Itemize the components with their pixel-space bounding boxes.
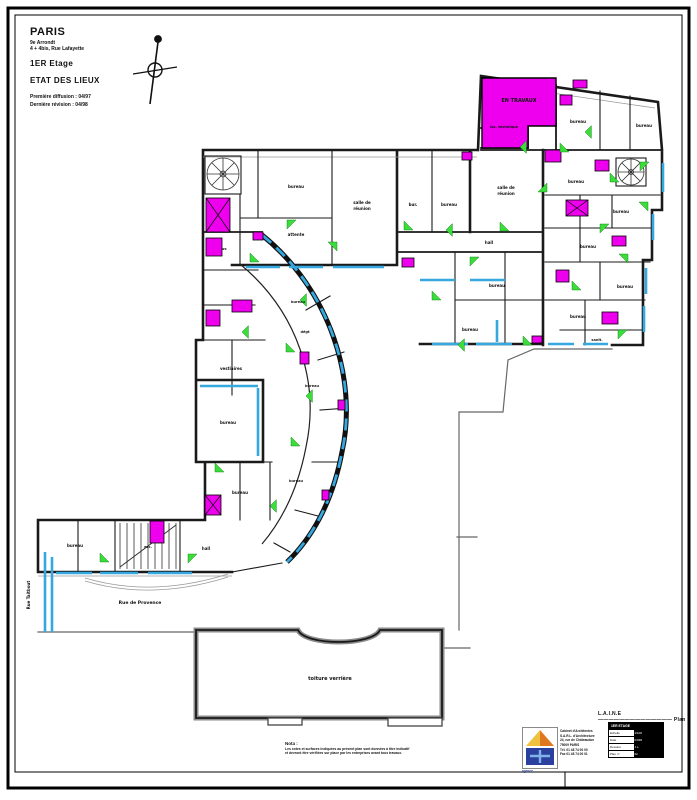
logo-caption: agence bbox=[522, 769, 533, 773]
room-label: réunion bbox=[353, 206, 371, 211]
sheet-rev1: Première diffusion : 04/97 bbox=[30, 94, 100, 100]
door-swing-icon bbox=[500, 222, 509, 231]
stamp-value: 04/98 bbox=[634, 737, 664, 743]
room-label: bureau bbox=[636, 123, 652, 128]
room-label: bureau bbox=[232, 490, 248, 495]
highlight-zone bbox=[206, 238, 222, 256]
title-stamp: 1ER ETAGE Echelle 1/100 Date 04/98 Dessi… bbox=[608, 722, 664, 758]
door-swing-icon bbox=[639, 202, 648, 211]
door-swing-icon bbox=[215, 463, 224, 472]
door-swing-icon bbox=[404, 221, 413, 230]
highlight-zone bbox=[595, 160, 609, 171]
room-label: Rue Taitbout bbox=[26, 581, 31, 610]
highlight-zone bbox=[402, 258, 414, 267]
stamp-label: Echelle bbox=[609, 730, 634, 736]
highlight-zone bbox=[556, 270, 569, 282]
highlight-zone bbox=[462, 152, 472, 160]
sheet-rev2: Dernière révision : 04/98 bbox=[30, 102, 100, 108]
room-label: Rue de Provence bbox=[119, 600, 162, 606]
floor-plan: bureauattentesalle deréunionbur.bureausa… bbox=[26, 76, 663, 726]
room-label: bureau bbox=[67, 543, 83, 548]
highlight-zone bbox=[532, 336, 542, 343]
door-swing-icon bbox=[291, 437, 300, 446]
door-swing-icon bbox=[250, 253, 259, 262]
firm-logo-icon bbox=[522, 727, 558, 769]
door-swing-icon bbox=[470, 257, 479, 266]
room-label: bureau bbox=[489, 283, 505, 288]
room-label: esc. bbox=[144, 545, 152, 549]
room-labels-layer: bureauattentesalle deréunionbur.bureausa… bbox=[26, 98, 652, 682]
spiral-stair-west bbox=[205, 156, 241, 194]
room-label: hall bbox=[202, 546, 211, 551]
door-swing-icon bbox=[270, 500, 283, 513]
room-label: wc bbox=[221, 247, 226, 251]
room-label: bureau bbox=[305, 384, 319, 388]
room-label: sanit. bbox=[591, 338, 602, 342]
room-label: vestiaires bbox=[220, 366, 243, 371]
door-swing-icon bbox=[640, 162, 649, 171]
drawing-sheet: bureauattentesalle deréunionbur.bureausa… bbox=[0, 0, 697, 800]
curved-facade bbox=[240, 235, 346, 562]
room-label: dégt bbox=[300, 330, 309, 334]
door-swing-icon bbox=[242, 326, 255, 339]
door-swing-icon bbox=[610, 173, 619, 182]
room-label: bureau bbox=[570, 119, 586, 124]
room-label: bureau bbox=[462, 327, 478, 332]
highlight-zone bbox=[560, 95, 572, 105]
highlight-zone bbox=[322, 490, 329, 500]
door-swing-icon bbox=[523, 336, 532, 345]
sheet-status: ETAT DES LIEUX bbox=[30, 76, 100, 86]
highlight-zone bbox=[150, 521, 164, 543]
window-layer bbox=[45, 163, 663, 632]
highlight-zone bbox=[232, 300, 252, 312]
door-swing-icon bbox=[286, 343, 295, 352]
sheet-city: PARIS bbox=[30, 26, 100, 40]
note-line: et devront être vérifiées sur place par … bbox=[285, 751, 409, 755]
door-swing-icon bbox=[100, 553, 109, 562]
room-label: hall bbox=[485, 240, 494, 245]
floor-plan-canvas: bureauattentesalle deréunionbur.bureausa… bbox=[0, 0, 697, 800]
stamp-value: 1/100 bbox=[634, 730, 664, 736]
room-label: salle de bbox=[497, 185, 515, 190]
highlight-zone bbox=[206, 310, 220, 326]
door-swing-icon bbox=[446, 224, 459, 237]
room-label: bureau bbox=[289, 479, 303, 483]
north-arrow-icon bbox=[133, 36, 177, 104]
highlight-zone bbox=[612, 236, 626, 246]
door-swing-icon bbox=[432, 291, 441, 300]
door-swing-icon bbox=[287, 220, 296, 229]
highlight-zone bbox=[300, 352, 309, 364]
room-label: bureau bbox=[613, 209, 629, 214]
room-label: bureau bbox=[441, 202, 457, 207]
highlight-zone bbox=[602, 312, 618, 324]
highlight-zone bbox=[545, 150, 561, 162]
sheet-address: 4 + 4bis, Rue Lafayette bbox=[30, 46, 100, 52]
firm-block: Cabinet d'Architectes S.A.R.L. d'Archite… bbox=[560, 729, 606, 757]
room-label: EN TRAVAUX bbox=[501, 98, 536, 104]
door-swing-icon bbox=[572, 281, 581, 290]
highlighted-room bbox=[482, 78, 556, 148]
stamp-value: J.L. bbox=[634, 744, 664, 750]
highlight-zone bbox=[253, 232, 263, 240]
stamp-value: 02 bbox=[634, 751, 664, 757]
highlight-zone bbox=[338, 400, 345, 410]
room-label: bureau bbox=[291, 300, 305, 304]
room-label: bureau bbox=[570, 314, 586, 319]
door-swing-icon bbox=[618, 330, 627, 339]
sheet-floor: 1ER Etage bbox=[30, 59, 100, 69]
stamp-label: Plan n° bbox=[609, 751, 634, 757]
door-swing-icon bbox=[585, 126, 598, 139]
room-label: loc. technique bbox=[490, 125, 519, 129]
title-block: PARIS 9e Arrondt 4 + 4bis, Rue Lafayette… bbox=[30, 26, 100, 108]
stamp-label: Dessiné bbox=[609, 744, 634, 750]
door-swing-icon bbox=[306, 390, 319, 403]
room-label: réunion bbox=[497, 191, 515, 196]
room-label: bureau bbox=[617, 284, 633, 289]
room-label: bureau bbox=[288, 184, 304, 189]
room-label: attente bbox=[288, 232, 305, 237]
room-label: toiture verrière bbox=[308, 675, 352, 682]
room-label: bureau bbox=[220, 420, 236, 425]
room-label: salle de bbox=[353, 200, 371, 205]
room-label: bureau bbox=[568, 179, 584, 184]
room-label: bur. bbox=[409, 202, 418, 207]
room-label: bureau bbox=[580, 244, 596, 249]
stamp-label: Date bbox=[609, 737, 634, 743]
door-swing-icon bbox=[188, 554, 197, 563]
firm-line: Fax 01 48 74 00 01 bbox=[560, 752, 606, 757]
note-block: Nota : Les cotes et surfaces indiquées a… bbox=[285, 741, 409, 756]
highlight-zone bbox=[573, 80, 587, 88]
door-swing-icon bbox=[560, 143, 569, 152]
